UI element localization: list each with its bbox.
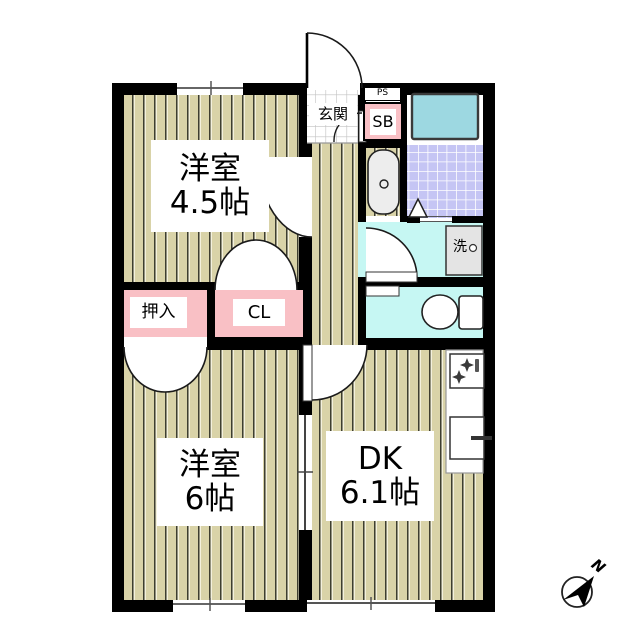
dk-door-leaf <box>303 345 312 401</box>
grill-icon <box>475 359 479 372</box>
floor-plan-drawing <box>0 0 640 640</box>
bathtub <box>412 94 478 139</box>
cl-closet-label: CL <box>233 299 285 326</box>
western-room-large-label: 洋室 6帖 <box>157 438 263 526</box>
toilet-tank <box>459 296 483 329</box>
wash-basin <box>368 150 399 214</box>
room-size: 6.1帖 <box>340 476 420 510</box>
pipe-space-label: PS <box>364 87 401 101</box>
room-size: 6帖 <box>185 482 236 516</box>
faucet-icon <box>471 436 492 440</box>
hallway-floor <box>312 143 358 345</box>
entrance-label: 玄関 <box>309 103 357 125</box>
western-room-small-label: 洋室 4.5帖 <box>151 140 269 232</box>
room-name: DK <box>358 442 402 476</box>
washer-label: 洗 <box>449 239 471 257</box>
oshiire-closet-label: 押入 <box>130 297 187 328</box>
washroom-door-leaf <box>366 272 417 282</box>
entrance-door-arc <box>307 33 362 88</box>
dining-kitchen-label: DK 6.1帖 <box>326 431 434 521</box>
floor-plan: 洋室 4.5帖 洋室 6帖 DK 6.1帖 玄関 PS SB 押入 CL 洗 N <box>0 0 640 640</box>
toilet-door-leaf <box>366 286 399 296</box>
shoe-box-label: SB <box>370 109 396 135</box>
room-size: 4.5帖 <box>170 186 250 220</box>
room-name: 洋室 <box>179 448 241 482</box>
shoe-box: SB <box>363 102 403 141</box>
toilet-bowl <box>422 295 458 329</box>
compass-icon <box>562 576 594 607</box>
room-name: 洋室 <box>179 152 241 186</box>
